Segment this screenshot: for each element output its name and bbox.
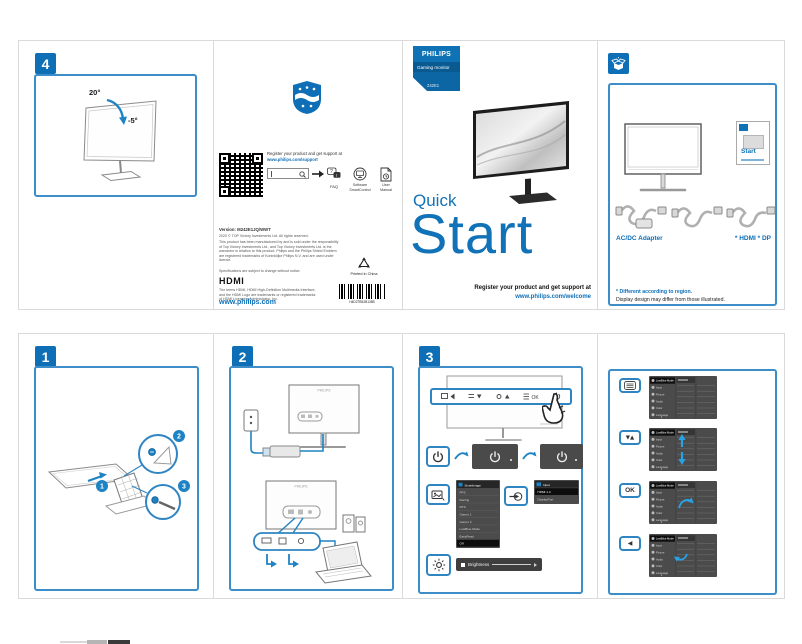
power-led-dot bbox=[510, 459, 513, 462]
hdmi-logo: HDMI bbox=[219, 276, 244, 286]
cut-off-content bbox=[108, 640, 130, 644]
svg-text:Color: Color bbox=[656, 406, 663, 410]
connection-box: PHILIPS PHILIPS bbox=[229, 366, 394, 591]
svg-text:PHILIPS: PHILIPS bbox=[294, 485, 308, 489]
osd-screenshot-back: LowBlue ModeInputPictureAudioColorLangua… bbox=[649, 534, 717, 577]
menu-ok-key-icon: OK bbox=[523, 392, 539, 401]
svg-text:FPS: FPS bbox=[460, 491, 466, 495]
quick-start-guide-scan: 4 20° -5° bbox=[0, 0, 802, 644]
brightness-label: Brightness bbox=[468, 562, 489, 567]
quick-start-booklet: Start bbox=[736, 121, 770, 165]
arrow-right-icon bbox=[312, 170, 324, 178]
cover-register-text: Register your product and get support at bbox=[474, 285, 591, 291]
product-category: Gaming monitor bbox=[417, 65, 450, 70]
panel-step4: 4 20° -5° bbox=[18, 40, 214, 310]
tilt-illustration-box: 20° -5° bbox=[34, 74, 197, 197]
osd-screenshot-navigate: LowBlue ModeInputPictureAudioColorLangua… bbox=[649, 428, 717, 471]
svg-text:LowBlue Mode: LowBlue Mode bbox=[656, 537, 674, 541]
stand-assembly-illustration: 1 2 3 bbox=[36, 368, 197, 589]
panel-cover: PHILIPS Gaming monitor 242E1 bbox=[402, 40, 598, 310]
user-manual-label-1: User bbox=[375, 183, 397, 187]
qr-code bbox=[219, 153, 263, 197]
printed-in-china: Printed in China bbox=[347, 272, 381, 276]
user-manual-icon bbox=[380, 167, 392, 182]
hdmi-cable-illustration bbox=[670, 195, 724, 231]
faq-label: FAQ bbox=[327, 184, 341, 189]
bottom-sheet: 1 bbox=[18, 333, 785, 599]
svg-text:Gamer 2: Gamer 2 bbox=[460, 520, 472, 524]
faq-icon: ? ! bbox=[327, 167, 341, 181]
register-url: www.philips.com/support bbox=[267, 157, 318, 162]
svg-text:Input: Input bbox=[543, 483, 550, 487]
controls-box: OK bbox=[418, 366, 583, 594]
svg-text:EasyRead: EasyRead bbox=[460, 534, 475, 538]
panel-step1: 1 bbox=[18, 333, 214, 599]
svg-text:2: 2 bbox=[177, 434, 181, 441]
dp-cable-illustration bbox=[726, 195, 776, 231]
osd-menu-key bbox=[619, 378, 641, 393]
stand-assembly-box: 1 2 3 bbox=[34, 366, 199, 591]
osd-navigation-box: LowBlue ModeInputPictureAudioColorLangua… bbox=[608, 369, 777, 595]
osd-menu-screenshot: LowBlue ModeInputPictureAudioColorLangua… bbox=[649, 481, 717, 524]
svg-text:Input: Input bbox=[656, 544, 662, 548]
smartcontrol-label-1: Software bbox=[346, 183, 374, 187]
svg-text:DisplayPort: DisplayPort bbox=[538, 498, 554, 502]
input-down-key-icon bbox=[468, 392, 482, 401]
booklet-monitor-thumb bbox=[743, 135, 764, 149]
monitor-key-panel-off bbox=[472, 444, 518, 469]
input-menu: InputHDMI 1.4DisplayPort bbox=[534, 480, 579, 504]
svg-text:!: ! bbox=[336, 173, 337, 178]
input-select-button bbox=[504, 486, 528, 506]
panel-contents: Start bbox=[597, 40, 785, 310]
philips-website: www.philips.com bbox=[219, 299, 276, 306]
note-region: * Different according to region. bbox=[616, 289, 692, 295]
svg-text:?: ? bbox=[330, 169, 333, 175]
smartcontrol-label-2: SmartControl bbox=[346, 188, 374, 192]
booklet-philips-chip bbox=[739, 124, 748, 131]
curved-arrow-icon bbox=[522, 450, 537, 461]
brightness-slider-track bbox=[492, 564, 531, 565]
smartimage-menu-screenshot: SmartImageFPSRacingRTSGamer 1Gamer 2LowB… bbox=[456, 480, 500, 548]
svg-text:Input: Input bbox=[656, 386, 662, 390]
booklet-title: Start bbox=[741, 148, 756, 155]
back-arrow-icon: ◀ bbox=[628, 540, 633, 547]
brightness-button bbox=[426, 554, 451, 576]
unboxing-icon bbox=[608, 53, 629, 74]
hand-pointer-icon bbox=[542, 392, 580, 430]
svg-text:Picture: Picture bbox=[656, 550, 665, 554]
curved-arrow-icon bbox=[454, 450, 469, 461]
top-sheet: 4 20° -5° bbox=[18, 40, 785, 310]
svg-text:Audio: Audio bbox=[656, 399, 663, 403]
svg-text:LowBlue Mode: LowBlue Mode bbox=[656, 431, 674, 435]
smartcontrol-icon bbox=[353, 167, 367, 181]
legal-text: This product has been manufactured by an… bbox=[219, 240, 339, 263]
copyright-line: 2020 © TOP Victory Investments Ltd. All … bbox=[219, 234, 309, 239]
osd-updown-key: ▼▲ bbox=[619, 430, 641, 445]
panel-osd-navigation: LowBlue ModeInputPictureAudioColorLangua… bbox=[597, 333, 785, 599]
search-box bbox=[267, 168, 309, 179]
svg-text:Color: Color bbox=[656, 564, 663, 568]
smartimage-menu: SmartImageFPSRacingRTSGamer 1Gamer 2LowB… bbox=[456, 480, 500, 548]
svg-text:Off: Off bbox=[460, 542, 464, 546]
svg-text:Audio: Audio bbox=[656, 557, 663, 561]
svg-text:LowBlue Mode: LowBlue Mode bbox=[460, 527, 481, 531]
step-2-badge: 2 bbox=[232, 346, 253, 367]
updown-arrows-icon: ▼▲ bbox=[626, 435, 634, 441]
text-cursor bbox=[271, 171, 272, 177]
panel-step3: 3 OK bbox=[402, 333, 598, 599]
svg-text:HDMI 1.4: HDMI 1.4 bbox=[538, 490, 551, 494]
cable-label: * HDMI * DP bbox=[735, 235, 771, 242]
osd-menu-screenshot: LowBlue ModeInputPictureAudioColorLangua… bbox=[649, 534, 717, 577]
tilt-monitor-illustration bbox=[36, 76, 195, 195]
svg-text:Color: Color bbox=[656, 458, 663, 462]
search-icon bbox=[299, 171, 306, 178]
tilt-angle-up: 20° bbox=[89, 88, 100, 97]
osd-screenshot-confirm: LowBlue ModeInputPictureAudioColorLangua… bbox=[649, 481, 717, 524]
svg-text:Input: Input bbox=[656, 438, 662, 442]
brightness-osd-bar: Brightness bbox=[456, 558, 542, 571]
brand-wordmark: PHILIPS bbox=[422, 51, 451, 58]
osd-back-key: ◀ bbox=[619, 536, 641, 551]
svg-text:3: 3 bbox=[182, 484, 186, 491]
svg-text:Racing: Racing bbox=[460, 498, 470, 502]
adapter-label: AC/DC Adapter bbox=[616, 235, 663, 242]
monitor-key-panel-on bbox=[540, 444, 583, 469]
cover-monitor-image bbox=[463, 99, 579, 211]
power-button bbox=[426, 446, 450, 467]
osd-ok-key: OK bbox=[619, 483, 641, 498]
panel-step2: 2 PHILIPS bbox=[213, 333, 403, 599]
spec-note: Specifications are subject to change wit… bbox=[219, 269, 301, 274]
svg-text:Audio: Audio bbox=[656, 504, 663, 508]
osd-screenshot-open: LowBlue ModeInputPictureAudioColorLangua… bbox=[649, 376, 717, 419]
osd-menu-screenshot: LowBlue ModeInputPictureAudioColorLangua… bbox=[649, 376, 717, 419]
svg-text:Picture: Picture bbox=[656, 392, 665, 396]
svg-text:PHILIPS: PHILIPS bbox=[317, 389, 331, 393]
tilt-angle-down: -5° bbox=[128, 116, 138, 125]
cover-register-url: www.philips.com/welcome bbox=[515, 294, 591, 300]
smartimage-back-key-icon bbox=[441, 392, 455, 401]
input-menu-screenshot: InputHDMI 1.4DisplayPort bbox=[534, 480, 579, 504]
svg-text:OK: OK bbox=[531, 395, 539, 401]
cut-off-content bbox=[87, 640, 107, 644]
recycle-icon bbox=[357, 257, 371, 270]
osd-menu-screenshot: LowBlue ModeInputPictureAudioColorLangua… bbox=[649, 428, 717, 471]
philips-shield-logo bbox=[292, 81, 322, 114]
barcode-text: H4D2TB52B135B bbox=[339, 300, 385, 304]
brightness-up-key-icon bbox=[496, 392, 510, 401]
svg-text:SmartImage: SmartImage bbox=[465, 483, 482, 487]
contents-monitor-illustration bbox=[624, 123, 704, 195]
svg-text:Picture: Picture bbox=[656, 444, 665, 448]
svg-text:Gamer 1: Gamer 1 bbox=[460, 513, 472, 517]
box-contents-box: Start bbox=[608, 83, 777, 306]
model-number: 242E1 bbox=[427, 83, 439, 88]
adapter-cable-illustration bbox=[614, 195, 668, 231]
smartimage-button bbox=[426, 484, 450, 505]
step-4-badge: 4 bbox=[35, 53, 56, 74]
title-start: Start bbox=[410, 201, 533, 266]
step-1-badge: 1 bbox=[35, 346, 56, 367]
brightness-icon bbox=[461, 563, 465, 567]
version-line: Version: M242E1JQ/WWT bbox=[219, 227, 271, 232]
panel-support: Register your product and get support at… bbox=[213, 40, 403, 310]
svg-text:LowBlue Mode: LowBlue Mode bbox=[656, 379, 674, 383]
svg-text:Color: Color bbox=[656, 511, 663, 515]
step-3-badge: 3 bbox=[419, 346, 440, 367]
menu-icon bbox=[624, 381, 636, 390]
brightness-slider-arrow bbox=[534, 563, 537, 567]
ok-label: OK bbox=[625, 487, 635, 494]
register-text: Register your product and get support at bbox=[267, 151, 342, 156]
power-led-dot bbox=[575, 459, 578, 462]
barcode bbox=[339, 284, 385, 299]
note-design: Display design may differ from those ill… bbox=[616, 297, 725, 303]
svg-text:1: 1 bbox=[100, 484, 104, 491]
connection-illustration: PHILIPS PHILIPS bbox=[231, 368, 392, 589]
philips-brand-block: PHILIPS Gaming monitor 242E1 bbox=[413, 46, 460, 91]
svg-text:LowBlue Mode: LowBlue Mode bbox=[656, 484, 674, 488]
svg-text:Picture: Picture bbox=[656, 497, 665, 501]
svg-text:Input: Input bbox=[656, 491, 662, 495]
svg-text:RTS: RTS bbox=[460, 505, 466, 509]
user-manual-label-2: Manual bbox=[375, 188, 397, 192]
svg-text:Audio: Audio bbox=[656, 451, 663, 455]
